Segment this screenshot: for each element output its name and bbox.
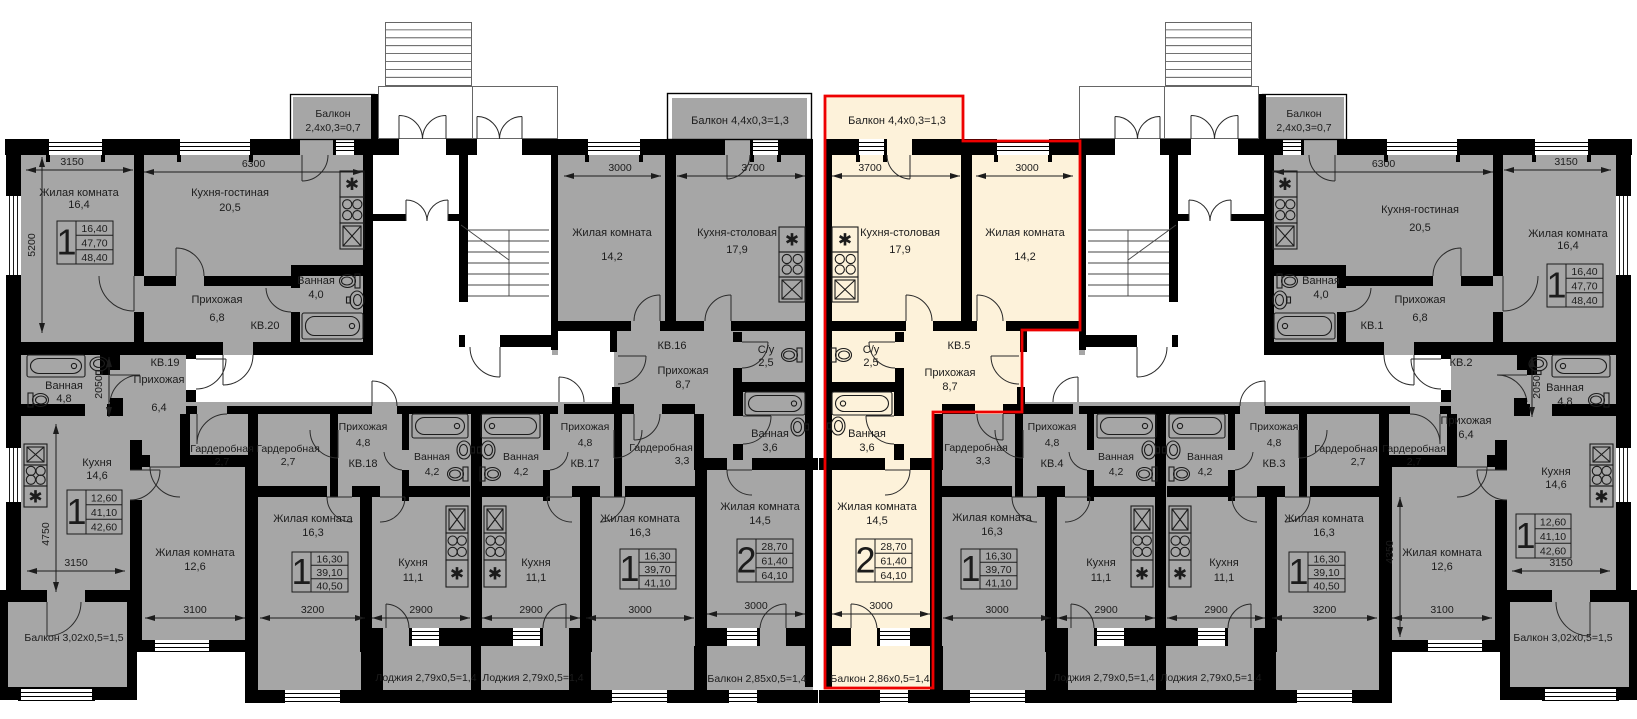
svg-text:4,8: 4,8 xyxy=(56,393,71,405)
svg-text:Жилая комната: Жилая комната xyxy=(837,501,917,513)
svg-text:6300: 6300 xyxy=(242,158,266,170)
svg-text:8,7: 8,7 xyxy=(942,381,957,393)
svg-text:Балкон 3,02х0,5=1,5: Балкон 3,02х0,5=1,5 xyxy=(24,632,123,644)
svg-text:Ванная: Ванная xyxy=(414,451,450,463)
svg-text:8,7: 8,7 xyxy=(675,379,690,391)
svg-text:3200: 3200 xyxy=(1313,604,1337,616)
svg-text:4,0: 4,0 xyxy=(308,289,323,301)
svg-text:47,70: 47,70 xyxy=(1571,281,1597,293)
svg-text:✱: ✱ xyxy=(450,565,464,584)
svg-text:Прихожая: Прихожая xyxy=(1395,294,1446,306)
svg-text:КВ.17: КВ.17 xyxy=(570,458,599,470)
svg-text:2900: 2900 xyxy=(519,604,543,616)
svg-text:1: 1 xyxy=(1288,551,1308,592)
svg-text:14,6: 14,6 xyxy=(1545,479,1566,491)
svg-text:3700: 3700 xyxy=(741,162,765,174)
svg-text:✱: ✱ xyxy=(28,488,42,507)
svg-text:4,2: 4,2 xyxy=(514,466,529,478)
svg-text:2,5: 2,5 xyxy=(863,357,878,369)
svg-text:3000: 3000 xyxy=(744,600,768,612)
svg-text:16,3: 16,3 xyxy=(302,527,323,539)
svg-text:61,40: 61,40 xyxy=(761,556,787,568)
svg-text:Кухня: Кухня xyxy=(1209,557,1238,569)
svg-text:40,50: 40,50 xyxy=(1313,580,1339,592)
svg-text:39,10: 39,10 xyxy=(316,567,342,579)
svg-text:3150: 3150 xyxy=(1554,156,1578,168)
svg-text:6,8: 6,8 xyxy=(1412,312,1427,324)
svg-text:КВ.4: КВ.4 xyxy=(1041,458,1064,470)
svg-text:28,70: 28,70 xyxy=(880,541,906,553)
svg-text:17,9: 17,9 xyxy=(889,244,910,256)
svg-text:Балкон 4,4х0,3=1,3: Балкон 4,4х0,3=1,3 xyxy=(691,115,789,127)
svg-text:14,5: 14,5 xyxy=(749,515,770,527)
svg-text:Прихожая: Прихожая xyxy=(339,421,388,433)
svg-text:16,30: 16,30 xyxy=(985,551,1011,563)
svg-text:Жилая комната: Жилая комната xyxy=(1284,513,1364,525)
svg-text:2050: 2050 xyxy=(1531,375,1543,399)
svg-text:✱: ✱ xyxy=(1278,175,1292,194)
svg-text:3000: 3000 xyxy=(608,162,632,174)
svg-text:1: 1 xyxy=(1546,265,1566,306)
svg-text:3100: 3100 xyxy=(1430,604,1454,616)
svg-text:✱: ✱ xyxy=(785,231,799,250)
svg-text:3000: 3000 xyxy=(1015,162,1039,174)
svg-text:12,60: 12,60 xyxy=(91,492,117,504)
svg-text:Кухня: Кухня xyxy=(521,557,550,569)
svg-text:2: 2 xyxy=(736,540,756,581)
svg-text:64,10: 64,10 xyxy=(761,570,787,582)
svg-text:КВ.20: КВ.20 xyxy=(250,320,279,332)
svg-text:64,10: 64,10 xyxy=(880,570,906,582)
svg-text:КВ.1: КВ.1 xyxy=(1361,320,1384,332)
svg-text:11,1: 11,1 xyxy=(526,572,547,584)
svg-text:2,4х0,3=0,7: 2,4х0,3=0,7 xyxy=(305,122,360,134)
svg-text:Прихожая: Прихожая xyxy=(134,374,185,386)
svg-text:Кухня-гостиная: Кухня-гостиная xyxy=(191,187,269,199)
svg-text:Жилая комната: Жилая комната xyxy=(1528,228,1608,240)
svg-text:Балкон: Балкон xyxy=(1286,108,1321,120)
svg-text:Гардеробная: Гардеробная xyxy=(190,443,254,455)
svg-text:3000: 3000 xyxy=(869,600,893,612)
svg-text:14,5: 14,5 xyxy=(866,515,887,527)
svg-text:Гардеробная: Гардеробная xyxy=(1314,443,1378,455)
svg-text:КВ.5: КВ.5 xyxy=(948,340,971,352)
svg-text:39,70: 39,70 xyxy=(644,564,670,576)
svg-text:Кухня: Кухня xyxy=(1541,466,1570,478)
svg-text:4,2: 4,2 xyxy=(425,466,440,478)
svg-text:42,60: 42,60 xyxy=(1540,546,1566,558)
svg-text:3000: 3000 xyxy=(985,604,1009,616)
svg-text:4,0: 4,0 xyxy=(1313,289,1328,301)
svg-text:Прихожая: Прихожая xyxy=(1441,415,1492,427)
svg-text:2900: 2900 xyxy=(409,604,433,616)
svg-text:2,7: 2,7 xyxy=(281,456,296,468)
svg-text:3,6: 3,6 xyxy=(859,442,874,454)
svg-text:3150: 3150 xyxy=(1549,557,1573,569)
svg-text:41,10: 41,10 xyxy=(985,577,1011,589)
svg-text:Гардеробная: Гардеробная xyxy=(944,442,1008,454)
svg-text:✱: ✱ xyxy=(1173,565,1187,584)
svg-text:✱: ✱ xyxy=(1135,565,1149,584)
svg-text:Прихожая: Прихожая xyxy=(925,367,976,379)
svg-text:4,2: 4,2 xyxy=(1109,466,1124,478)
svg-text:✱: ✱ xyxy=(838,231,852,250)
svg-text:С/у: С/у xyxy=(758,344,775,356)
svg-text:Ванная: Ванная xyxy=(1302,275,1340,287)
svg-text:Ванная: Ванная xyxy=(503,451,539,463)
svg-text:4,8: 4,8 xyxy=(356,437,371,449)
svg-text:2900: 2900 xyxy=(1204,604,1228,616)
svg-text:Ванная: Ванная xyxy=(297,275,335,287)
svg-text:Гардеробная: Гардеробная xyxy=(1382,443,1446,455)
svg-text:Ванная: Ванная xyxy=(848,428,886,440)
svg-text:11,1: 11,1 xyxy=(1091,572,1112,584)
svg-text:Гардеробная: Гардеробная xyxy=(256,443,320,455)
svg-text:2,4х0,3=0,7: 2,4х0,3=0,7 xyxy=(1276,122,1331,134)
svg-text:КВ.16: КВ.16 xyxy=(657,340,686,352)
svg-text:Жилая комната: Жилая комната xyxy=(273,513,353,525)
svg-text:КВ.3: КВ.3 xyxy=(1263,458,1286,470)
svg-text:16,3: 16,3 xyxy=(981,526,1002,538)
svg-text:12,60: 12,60 xyxy=(1540,516,1566,528)
svg-text:Ванная: Ванная xyxy=(1546,382,1584,394)
svg-text:Балкон 3,02х0,5=1,5: Балкон 3,02х0,5=1,5 xyxy=(1513,632,1612,644)
svg-text:20,5: 20,5 xyxy=(219,202,240,214)
svg-text:14,2: 14,2 xyxy=(601,251,622,263)
svg-text:40,50: 40,50 xyxy=(316,580,342,592)
svg-text:Прихожая: Прихожая xyxy=(1028,421,1077,433)
svg-text:Жилая комната: Жилая комната xyxy=(720,501,800,513)
svg-text:5200: 5200 xyxy=(26,233,38,257)
svg-text:3,3: 3,3 xyxy=(976,455,991,467)
svg-text:3150: 3150 xyxy=(60,156,84,168)
svg-text:✱: ✱ xyxy=(345,175,359,194)
svg-text:11,1: 11,1 xyxy=(1214,572,1235,584)
svg-text:1: 1 xyxy=(960,548,980,589)
svg-text:Ванная: Ванная xyxy=(1098,451,1134,463)
svg-text:Лоджия 2,79х0,5=1,4: Лоджия 2,79х0,5=1,4 xyxy=(482,672,583,684)
svg-text:2,5: 2,5 xyxy=(758,357,773,369)
svg-text:Кухня: Кухня xyxy=(82,457,111,469)
svg-text:6,4: 6,4 xyxy=(1458,429,1473,441)
svg-text:61,40: 61,40 xyxy=(880,556,906,568)
svg-text:Прихожая: Прихожая xyxy=(658,365,709,377)
svg-text:Ванная: Ванная xyxy=(751,428,789,440)
svg-text:39,10: 39,10 xyxy=(1313,567,1339,579)
svg-text:Жилая комната: Жилая комната xyxy=(1402,547,1482,559)
svg-text:Ванная: Ванная xyxy=(1187,451,1223,463)
svg-text:3200: 3200 xyxy=(301,604,325,616)
svg-text:✱: ✱ xyxy=(488,565,502,584)
svg-text:Кухня: Кухня xyxy=(1086,557,1115,569)
svg-text:Прихожая: Прихожая xyxy=(192,294,243,306)
svg-text:4,8: 4,8 xyxy=(578,437,593,449)
svg-text:Ванная: Ванная xyxy=(45,380,83,392)
svg-text:4,8: 4,8 xyxy=(1267,437,1282,449)
svg-text:3,6: 3,6 xyxy=(762,442,777,454)
svg-text:48,40: 48,40 xyxy=(81,252,107,264)
svg-text:39,70: 39,70 xyxy=(985,564,1011,576)
svg-text:Балкон: Балкон xyxy=(315,108,350,120)
svg-text:20,5: 20,5 xyxy=(1409,222,1430,234)
svg-text:2,7: 2,7 xyxy=(1407,456,1422,468)
svg-text:16,4: 16,4 xyxy=(1557,240,1578,252)
svg-text:4750: 4750 xyxy=(40,522,52,546)
svg-text:Лоджия 2,79х0,5=1,4: Лоджия 2,79х0,5=1,4 xyxy=(375,672,476,684)
svg-text:28,70: 28,70 xyxy=(761,541,787,553)
svg-text:41,10: 41,10 xyxy=(91,507,117,519)
svg-text:16,30: 16,30 xyxy=(1313,554,1339,566)
svg-text:1: 1 xyxy=(66,491,86,532)
svg-text:6,4: 6,4 xyxy=(151,402,166,414)
svg-text:КВ.19: КВ.19 xyxy=(150,357,179,369)
svg-text:Кухня: Кухня xyxy=(398,557,427,569)
svg-text:2900: 2900 xyxy=(1094,604,1118,616)
svg-text:1: 1 xyxy=(1515,515,1535,556)
svg-text:2: 2 xyxy=(855,540,875,581)
svg-text:Гардеробная: Гардеробная xyxy=(629,442,693,454)
svg-text:11,1: 11,1 xyxy=(403,572,424,584)
svg-text:Жилая комната: Жилая комната xyxy=(155,547,235,559)
svg-text:16,30: 16,30 xyxy=(316,554,342,566)
svg-text:Лоджия 2,79х0,5=1,4: Лоджия 2,79х0,5=1,4 xyxy=(1160,672,1261,684)
svg-text:4350: 4350 xyxy=(1384,540,1396,564)
svg-text:16,40: 16,40 xyxy=(1571,266,1597,278)
svg-text:3000: 3000 xyxy=(628,604,652,616)
svg-text:Балкон 2,85х0,5=1,4: Балкон 2,85х0,5=1,4 xyxy=(707,673,806,685)
svg-text:1: 1 xyxy=(56,222,76,263)
svg-text:16,40: 16,40 xyxy=(81,223,107,235)
svg-text:14,2: 14,2 xyxy=(1014,251,1035,263)
svg-text:16,3: 16,3 xyxy=(629,527,650,539)
svg-text:14,6: 14,6 xyxy=(86,470,107,482)
svg-text:2050: 2050 xyxy=(93,375,105,399)
svg-text:Жилая комната: Жилая комната xyxy=(39,187,119,199)
svg-text:✱: ✱ xyxy=(1594,488,1608,507)
svg-text:КВ.2: КВ.2 xyxy=(1450,357,1473,369)
svg-text:12,6: 12,6 xyxy=(184,561,205,573)
svg-text:3150: 3150 xyxy=(64,557,88,569)
svg-text:3700: 3700 xyxy=(858,162,882,174)
svg-text:4,8: 4,8 xyxy=(1045,437,1060,449)
svg-text:1: 1 xyxy=(291,551,311,592)
svg-text:3,3: 3,3 xyxy=(675,455,690,467)
svg-text:1: 1 xyxy=(619,548,639,589)
svg-text:Прихожая: Прихожая xyxy=(561,421,610,433)
svg-text:Прихожая: Прихожая xyxy=(1250,421,1299,433)
svg-text:47,70: 47,70 xyxy=(81,238,107,250)
svg-text:КВ.18: КВ.18 xyxy=(348,458,377,470)
svg-text:41,10: 41,10 xyxy=(1540,531,1566,543)
svg-text:2,7: 2,7 xyxy=(1351,456,1366,468)
svg-text:4,2: 4,2 xyxy=(1198,466,1213,478)
svg-text:4,8: 4,8 xyxy=(1557,396,1572,408)
svg-text:Жилая комната: Жилая комната xyxy=(985,227,1065,239)
svg-text:Кухня-столовая: Кухня-столовая xyxy=(860,227,940,239)
svg-text:Жилая комната: Жилая комната xyxy=(600,513,680,525)
svg-text:С/у: С/у xyxy=(863,344,880,356)
svg-text:48,40: 48,40 xyxy=(1571,295,1597,307)
svg-text:2,7: 2,7 xyxy=(215,456,230,468)
svg-text:16,3: 16,3 xyxy=(1313,527,1334,539)
svg-text:42,60: 42,60 xyxy=(91,522,117,534)
svg-text:Жилая комната: Жилая комната xyxy=(952,512,1032,524)
svg-text:Лоджия 2,79х0,5=1,4: Лоджия 2,79х0,5=1,4 xyxy=(1053,672,1154,684)
svg-text:17,9: 17,9 xyxy=(726,244,747,256)
svg-text:Жилая комната: Жилая комната xyxy=(572,227,652,239)
svg-text:12,6: 12,6 xyxy=(1431,561,1452,573)
svg-text:6300: 6300 xyxy=(1372,158,1396,170)
svg-text:Кухня-гостиная: Кухня-гостиная xyxy=(1381,204,1459,216)
svg-text:16,4: 16,4 xyxy=(68,199,89,211)
svg-text:Балкон 4,4х0,3=1,3: Балкон 4,4х0,3=1,3 xyxy=(848,115,946,127)
svg-text:3100: 3100 xyxy=(183,604,207,616)
svg-text:6,8: 6,8 xyxy=(209,312,224,324)
svg-text:Кухня-столовая: Кухня-столовая xyxy=(697,227,777,239)
svg-text:16,30: 16,30 xyxy=(644,551,670,563)
svg-text:41,10: 41,10 xyxy=(644,577,670,589)
svg-text:Балкон 2,86х0,5=1,4: Балкон 2,86х0,5=1,4 xyxy=(830,673,929,685)
